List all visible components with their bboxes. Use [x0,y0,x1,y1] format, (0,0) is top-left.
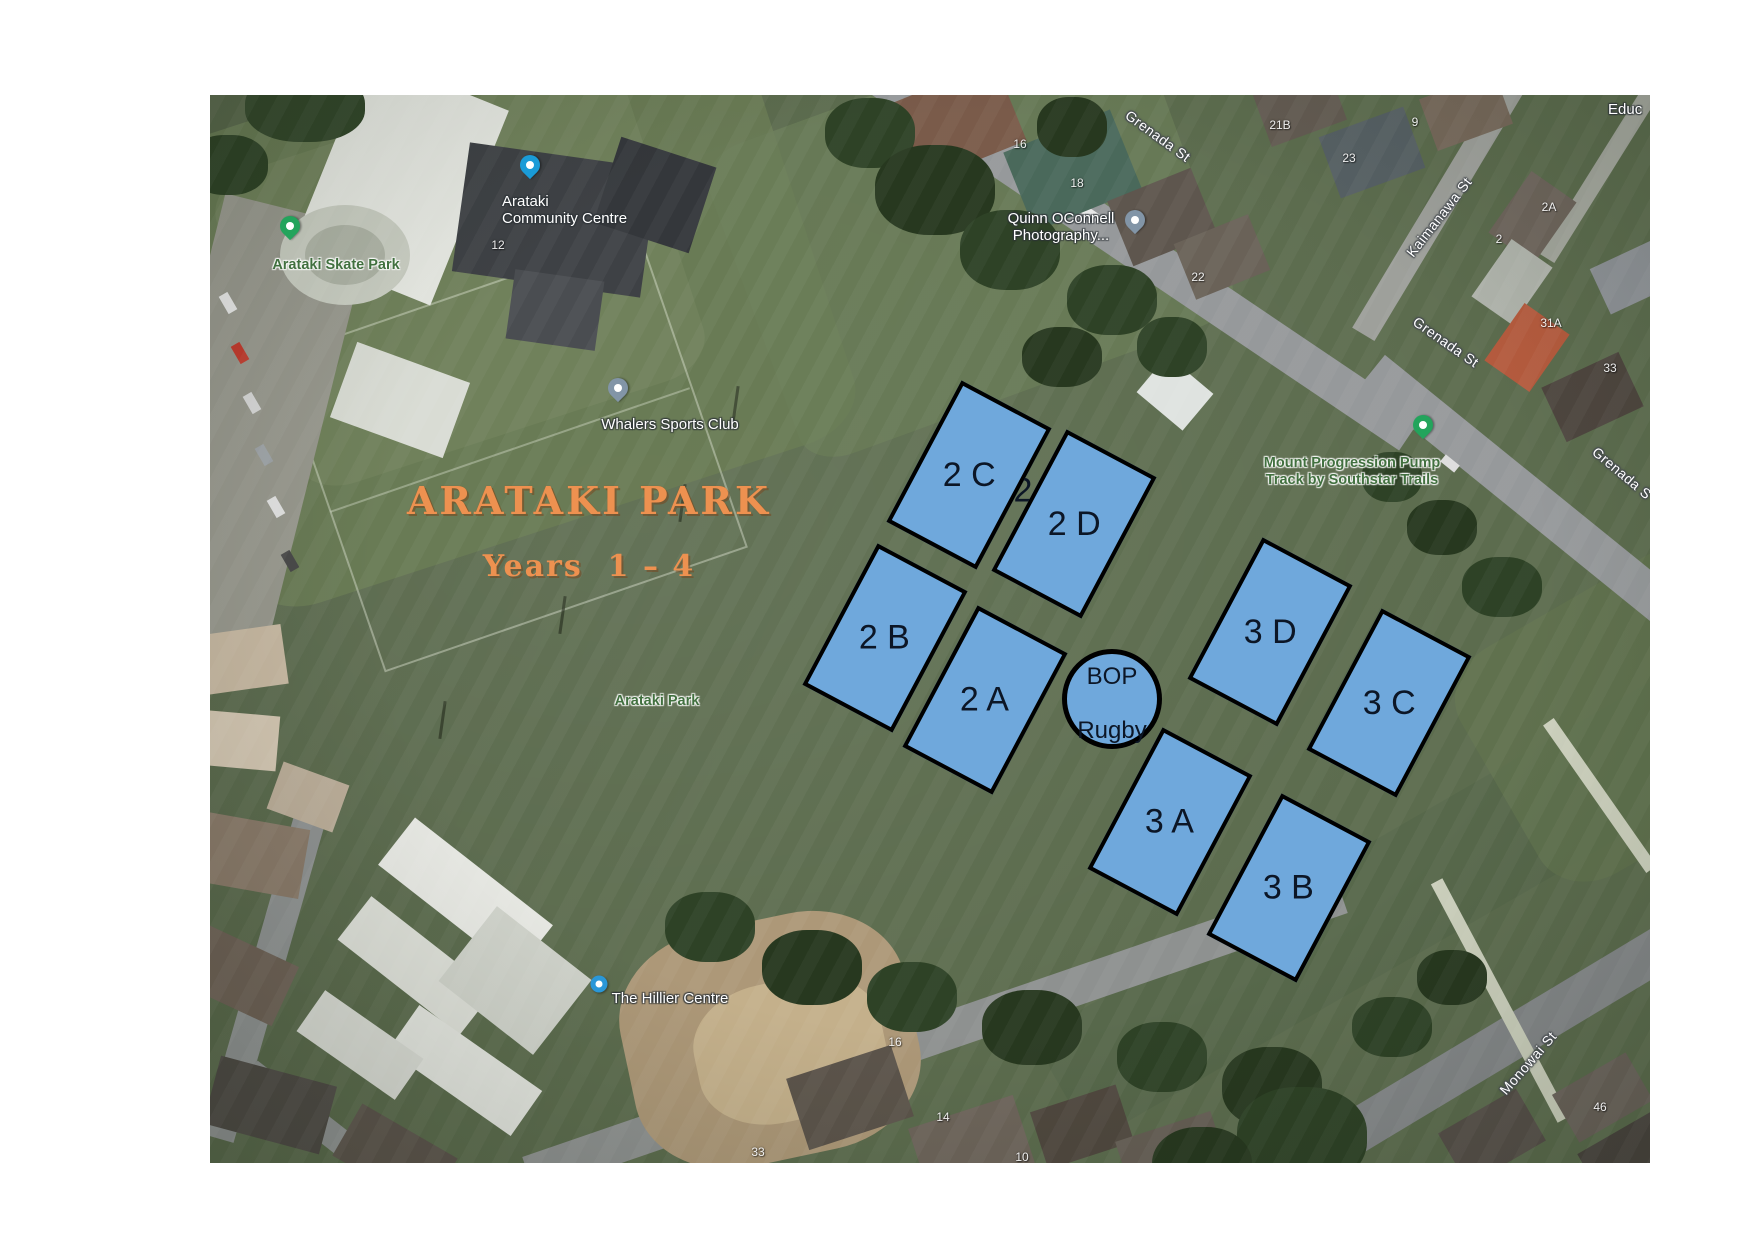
field-label-3D: 3 D [1244,612,1297,651]
house-number-14-12: 14 [936,1110,949,1124]
satellite-map-image: Grenada StGrenada StGrenada SKaimanawa S… [210,95,1650,1163]
house-number-18-1: 18 [1070,176,1083,190]
page: Grenada StGrenada StGrenada SKaimanawa S… [0,0,1754,1240]
scenery-shape [1407,500,1477,555]
field-label-2B: 2 B [859,618,910,657]
scenery-shape [1488,171,1576,264]
poi-label-educ-partial: Educ [1608,101,1642,118]
poi-label-arataki-skate-park: Arataki Skate Park [272,257,399,274]
poi-line: Track by Southstar Trails [1264,472,1440,489]
street-label-grenada-st-1: Grenada St [1410,313,1482,370]
poi-label-arataki-park: Arataki Park [615,693,700,710]
house-number-12-10: 12 [491,238,504,252]
field-label-2A: 2 A [960,680,1009,719]
poi-line: Photography... [1008,227,1115,244]
park-title: ARATAKI PARK [407,479,771,523]
poi-label-arataki-community-centre: AratakiCommunity Centre [502,193,627,227]
scenery-shape [1590,240,1650,315]
house-number-31A-7: 31A [1540,316,1561,330]
field-label-3A: 3 A [1145,802,1194,841]
scenery-shape [1352,997,1432,1057]
scenery-shape [1438,1089,1546,1163]
scenery-shape [210,624,289,696]
field-label-2D: 2 D [1048,504,1101,543]
scenery-shape [1067,265,1157,335]
field-label-2C: 2 C [943,455,996,494]
house-number-46-15: 46 [1593,1100,1606,1114]
scenery-shape [1022,327,1102,387]
house-number-16-0: 16 [1013,137,1026,151]
poi-line: Arataki Park [615,693,700,710]
house-number-2-6: 2 [1496,232,1503,246]
poi-label-mount-progression-pump-track: Mount Progression PumpTrack by Southstar… [1264,455,1440,489]
scenery-shape [210,709,280,771]
scenery-shape [1541,352,1643,442]
poi-line: Arataki Skate Park [272,257,399,274]
scenery-shape [506,269,605,351]
scenery-shape [1117,1022,1207,1092]
poi-line: Arataki [502,193,627,210]
scenery-shape [982,990,1082,1065]
scenery-shape [1539,95,1650,263]
scenery-shape [1462,557,1542,617]
house-number-10-14: 10 [1015,1150,1028,1163]
scenery-shape [438,701,446,739]
house-number-2A-5: 2A [1542,200,1557,214]
field-label-3C: 3 C [1363,683,1416,722]
poi-label-the-hillier-centre: The Hillier Centre [612,990,729,1007]
poi-line: Whalers Sports Club [601,416,739,433]
house-number-33-8: 33 [1603,361,1616,375]
scenery-shape [1237,1087,1367,1163]
scenery-shape [762,930,862,1005]
poi-label-quinn-oconnell-photography: Quinn OConnellPhotography... [1008,210,1115,244]
house-number-33-13: 33 [751,1145,764,1159]
bop-circle-line2: Rugby [1077,718,1146,744]
bop-circle-line1: BOP [1087,664,1138,690]
scenery-shape [1137,317,1207,377]
scenery-shape [332,1104,457,1163]
title-block: ARATAKI PARK Years 1 – 4 [407,479,771,585]
house-number-23-3: 23 [1342,151,1355,165]
house-number-9-4: 9 [1412,115,1419,129]
scenery-shape [665,892,755,962]
scenery-shape [1417,950,1487,1005]
field-3C: 3 C [1306,608,1471,797]
park-subtitle: Years 1 – 4 [407,549,771,585]
field-3D: 3 D [1187,537,1352,726]
poi-line: Quinn OConnell [1008,210,1115,227]
poi-line: Community Centre [502,210,627,227]
scenery-shape [267,762,350,833]
street-label-grenada-s-2: Grenada S [1589,444,1650,503]
poi-line: Educ [1608,101,1642,118]
scenery-shape [305,225,385,285]
poi-line: Mount Progression Pump [1264,455,1440,472]
scenery-shape [1037,97,1107,157]
house-number-22-9: 22 [1191,270,1204,284]
house-number-21B-2: 21B [1269,118,1290,132]
field-3A: 3 A [1087,727,1252,916]
poi-line: The Hillier Centre [612,990,729,1007]
bop-rugby-circle: BOP Rugby [1062,649,1162,749]
field-label-3B: 3 B [1263,868,1314,907]
scenery-shape [867,962,957,1032]
poi-label-whalers-sports-club: Whalers Sports Club [601,416,739,433]
the-hillier-centre-pin-icon [591,976,608,993]
house-number-16-11: 16 [888,1035,901,1049]
